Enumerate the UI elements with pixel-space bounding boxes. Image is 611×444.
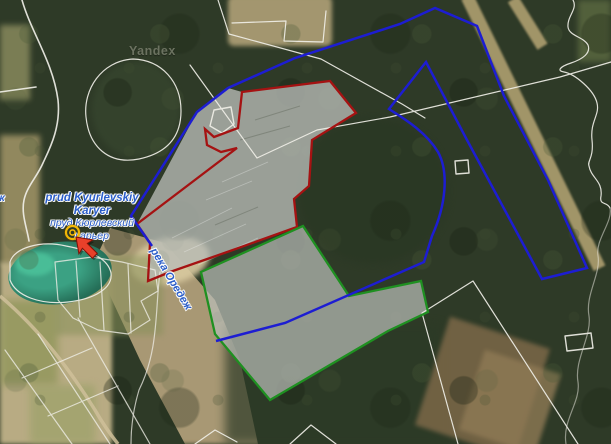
placemark-arrow	[76, 237, 97, 258]
map-markers	[0, 0, 611, 444]
map-viewport[interactable]: prud Kyurlevskiy Karyer пруд Кюрлевский …	[0, 0, 611, 444]
placemark-arrow-icon[interactable]	[76, 237, 99, 260]
